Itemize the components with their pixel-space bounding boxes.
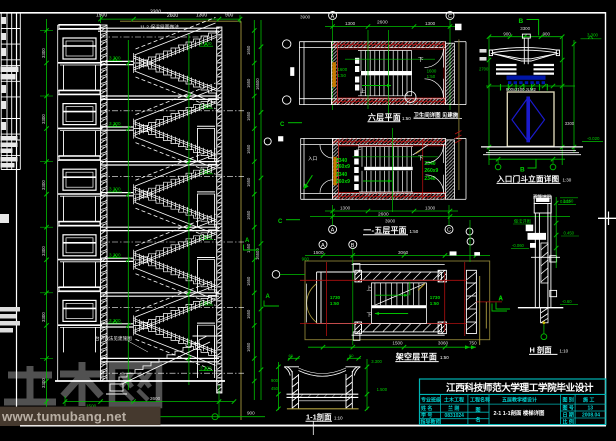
svg-text:1300: 1300 <box>425 206 436 211</box>
svg-text:1:50: 1:50 <box>427 74 436 79</box>
svg-text:一-五层平面: 一-五层平面 <box>363 226 406 235</box>
svg-text:16500: 16500 <box>255 248 260 260</box>
svg-text:1650: 1650 <box>246 45 251 55</box>
svg-text:1300: 1300 <box>425 21 436 26</box>
svg-text:3300: 3300 <box>41 48 46 58</box>
svg-text:台阶做法见建施图: 台阶做法见建施图 <box>95 335 132 342</box>
svg-text:16500: 16500 <box>255 78 260 90</box>
svg-text:www.tumubang.net: www.tumubang.net <box>1 409 127 424</box>
svg-text:B: B <box>519 18 524 25</box>
svg-text:下: 下 <box>418 155 424 162</box>
svg-text:900: 900 <box>543 32 551 37</box>
svg-text:3300: 3300 <box>41 114 46 124</box>
svg-text:A: A <box>245 238 250 244</box>
svg-text:900: 900 <box>271 378 279 383</box>
svg-text:1650: 1650 <box>246 342 251 352</box>
svg-text:施 工: 施 工 <box>582 397 594 404</box>
svg-text:1650: 1650 <box>246 243 251 253</box>
svg-text:五层教学楼设计: 五层教学楼设计 <box>502 397 537 404</box>
svg-text:2340: 2340 <box>336 172 347 178</box>
svg-text:A: A <box>266 294 271 300</box>
svg-text:图 号: 图 号 <box>563 404 574 411</box>
svg-text:1650: 1650 <box>246 177 251 187</box>
svg-text:1.500: 1.500 <box>377 387 388 392</box>
svg-text:日 期: 日 期 <box>563 411 574 418</box>
svg-text:3900: 3900 <box>385 219 396 224</box>
svg-text:B: B <box>351 243 355 249</box>
svg-text:260x9: 260x9 <box>336 164 350 170</box>
svg-text:A: A <box>331 14 335 20</box>
svg-text:900: 900 <box>503 32 511 37</box>
svg-text:指导教师: 指导教师 <box>421 419 441 426</box>
svg-text:土木工程: 土木工程 <box>444 397 464 404</box>
svg-text:1600: 1600 <box>427 69 437 74</box>
svg-text:3900: 3900 <box>300 14 311 19</box>
svg-text:1300: 1300 <box>340 206 351 211</box>
svg-text:-0.020: -0.020 <box>587 136 600 141</box>
svg-text:图 别: 图 别 <box>563 397 574 404</box>
svg-text:C: C <box>448 14 452 20</box>
svg-text:2-1 1-1剖面 楼梯详图: 2-1 1-1剖面 楼梯详图 <box>494 409 546 417</box>
svg-text:3060: 3060 <box>438 341 449 346</box>
svg-text:1650: 1650 <box>246 309 251 319</box>
svg-text:卫生间详图 见建施: 卫生间详图 见建施 <box>414 111 459 119</box>
svg-text:学 号: 学 号 <box>421 412 432 419</box>
svg-text:1300: 1300 <box>345 21 356 26</box>
svg-text:900: 900 <box>225 13 234 19</box>
svg-text:260x9: 260x9 <box>336 179 350 185</box>
svg-text:900: 900 <box>302 257 310 262</box>
svg-text:1650: 1650 <box>246 210 251 220</box>
svg-text:-0.060: -0.060 <box>512 243 525 248</box>
svg-text:750: 750 <box>469 341 477 346</box>
svg-text:2.160: 2.160 <box>563 198 574 203</box>
svg-text:下: 下 <box>367 312 372 319</box>
svg-text:3060: 3060 <box>398 250 409 255</box>
svg-text:1500: 1500 <box>313 250 324 255</box>
svg-text:1650: 1650 <box>246 144 251 154</box>
svg-text:工程名称: 工程名称 <box>470 397 490 404</box>
svg-text:-0.60: -0.60 <box>562 299 572 304</box>
svg-text:3.300: 3.300 <box>587 32 599 37</box>
svg-text:2340: 2340 <box>424 161 435 167</box>
svg-text:1650: 1650 <box>246 78 251 88</box>
svg-text:0831024: 0831024 <box>445 413 465 419</box>
svg-text:3300: 3300 <box>41 312 46 322</box>
svg-text:A: A <box>499 296 504 302</box>
svg-text:上: 上 <box>360 87 366 95</box>
svg-text:11.2 保温屋面做法: 11.2 保温屋面做法 <box>140 24 179 31</box>
svg-text:0.450: 0.450 <box>564 231 575 236</box>
svg-text:1300: 1300 <box>196 13 207 19</box>
svg-text:3300: 3300 <box>41 378 46 388</box>
svg-text:A: A <box>331 228 335 234</box>
svg-text:上: 上 <box>367 284 372 292</box>
svg-text:1650: 1650 <box>246 276 251 286</box>
svg-text:1600: 1600 <box>337 67 347 72</box>
svg-text:2700: 2700 <box>479 67 489 72</box>
svg-text:1730: 1730 <box>330 295 341 300</box>
svg-text:1:10: 1:10 <box>334 415 343 420</box>
svg-text:江西科技师范大学理工学院毕业设计: 江西科技师范大学理工学院毕业设计 <box>446 382 594 394</box>
svg-text:入口门斗立面详图: 入口门斗立面详图 <box>496 174 560 184</box>
svg-text:1:50: 1:50 <box>430 301 440 306</box>
svg-text:60: 60 <box>349 353 354 358</box>
svg-text:H 剖面: H 剖面 <box>530 346 553 355</box>
svg-text:2008.04: 2008.04 <box>582 412 600 418</box>
svg-text:六层平面: 六层平面 <box>368 112 401 122</box>
svg-text:1650: 1650 <box>246 111 251 121</box>
svg-text:1:50: 1:50 <box>330 301 340 306</box>
svg-text:A: A <box>321 243 325 249</box>
svg-text:3300: 3300 <box>41 180 46 190</box>
svg-text:3300: 3300 <box>565 121 575 126</box>
svg-text:3.300: 3.300 <box>371 359 382 364</box>
svg-text:1500: 1500 <box>392 341 403 346</box>
svg-text:上: 上 <box>356 144 362 152</box>
svg-text:1730: 1730 <box>430 295 441 300</box>
svg-text:3300: 3300 <box>150 10 161 16</box>
svg-text:C: C <box>280 122 285 128</box>
svg-text:1:50: 1:50 <box>440 355 449 360</box>
svg-text:C: C <box>278 219 283 225</box>
svg-text:1:50: 1:50 <box>337 73 346 78</box>
svg-text:2600: 2600 <box>167 13 178 19</box>
svg-text:2600: 2600 <box>377 19 388 25</box>
svg-text:B: B <box>520 167 525 174</box>
svg-text:图: 图 <box>476 407 481 414</box>
svg-text:专业班级: 专业班级 <box>421 397 441 404</box>
svg-text:架空层平面: 架空层平面 <box>395 352 438 362</box>
svg-text:13: 13 <box>588 405 594 411</box>
svg-text:做法详图: 做法详图 <box>514 218 531 225</box>
svg-text:下: 下 <box>418 57 424 64</box>
svg-text:2600: 2600 <box>150 396 161 401</box>
svg-text:1500: 1500 <box>96 13 107 19</box>
svg-text:260x9: 260x9 <box>424 168 438 174</box>
svg-text:1:30: 1:30 <box>563 177 572 182</box>
svg-text:900x2100 JLM2: 900x2100 JLM2 <box>506 87 536 92</box>
svg-text:60: 60 <box>289 353 294 358</box>
svg-text:3300: 3300 <box>520 26 530 31</box>
svg-text:450: 450 <box>271 386 279 391</box>
svg-text:2600: 2600 <box>378 211 389 217</box>
svg-text:名: 名 <box>476 417 481 424</box>
svg-text:C: C <box>447 228 451 234</box>
svg-text:1:50: 1:50 <box>410 229 419 234</box>
svg-text:3300: 3300 <box>41 246 46 256</box>
svg-text:1:10: 1:10 <box>560 348 569 353</box>
svg-text:900: 900 <box>247 411 255 416</box>
svg-text:1:50: 1:50 <box>402 116 411 121</box>
svg-text:比 例: 比 例 <box>563 418 574 425</box>
svg-text:姓 名: 姓 名 <box>420 405 432 412</box>
svg-text:兰 刚: 兰 刚 <box>448 405 459 412</box>
svg-text:1-1剖面: 1-1剖面 <box>306 413 332 422</box>
